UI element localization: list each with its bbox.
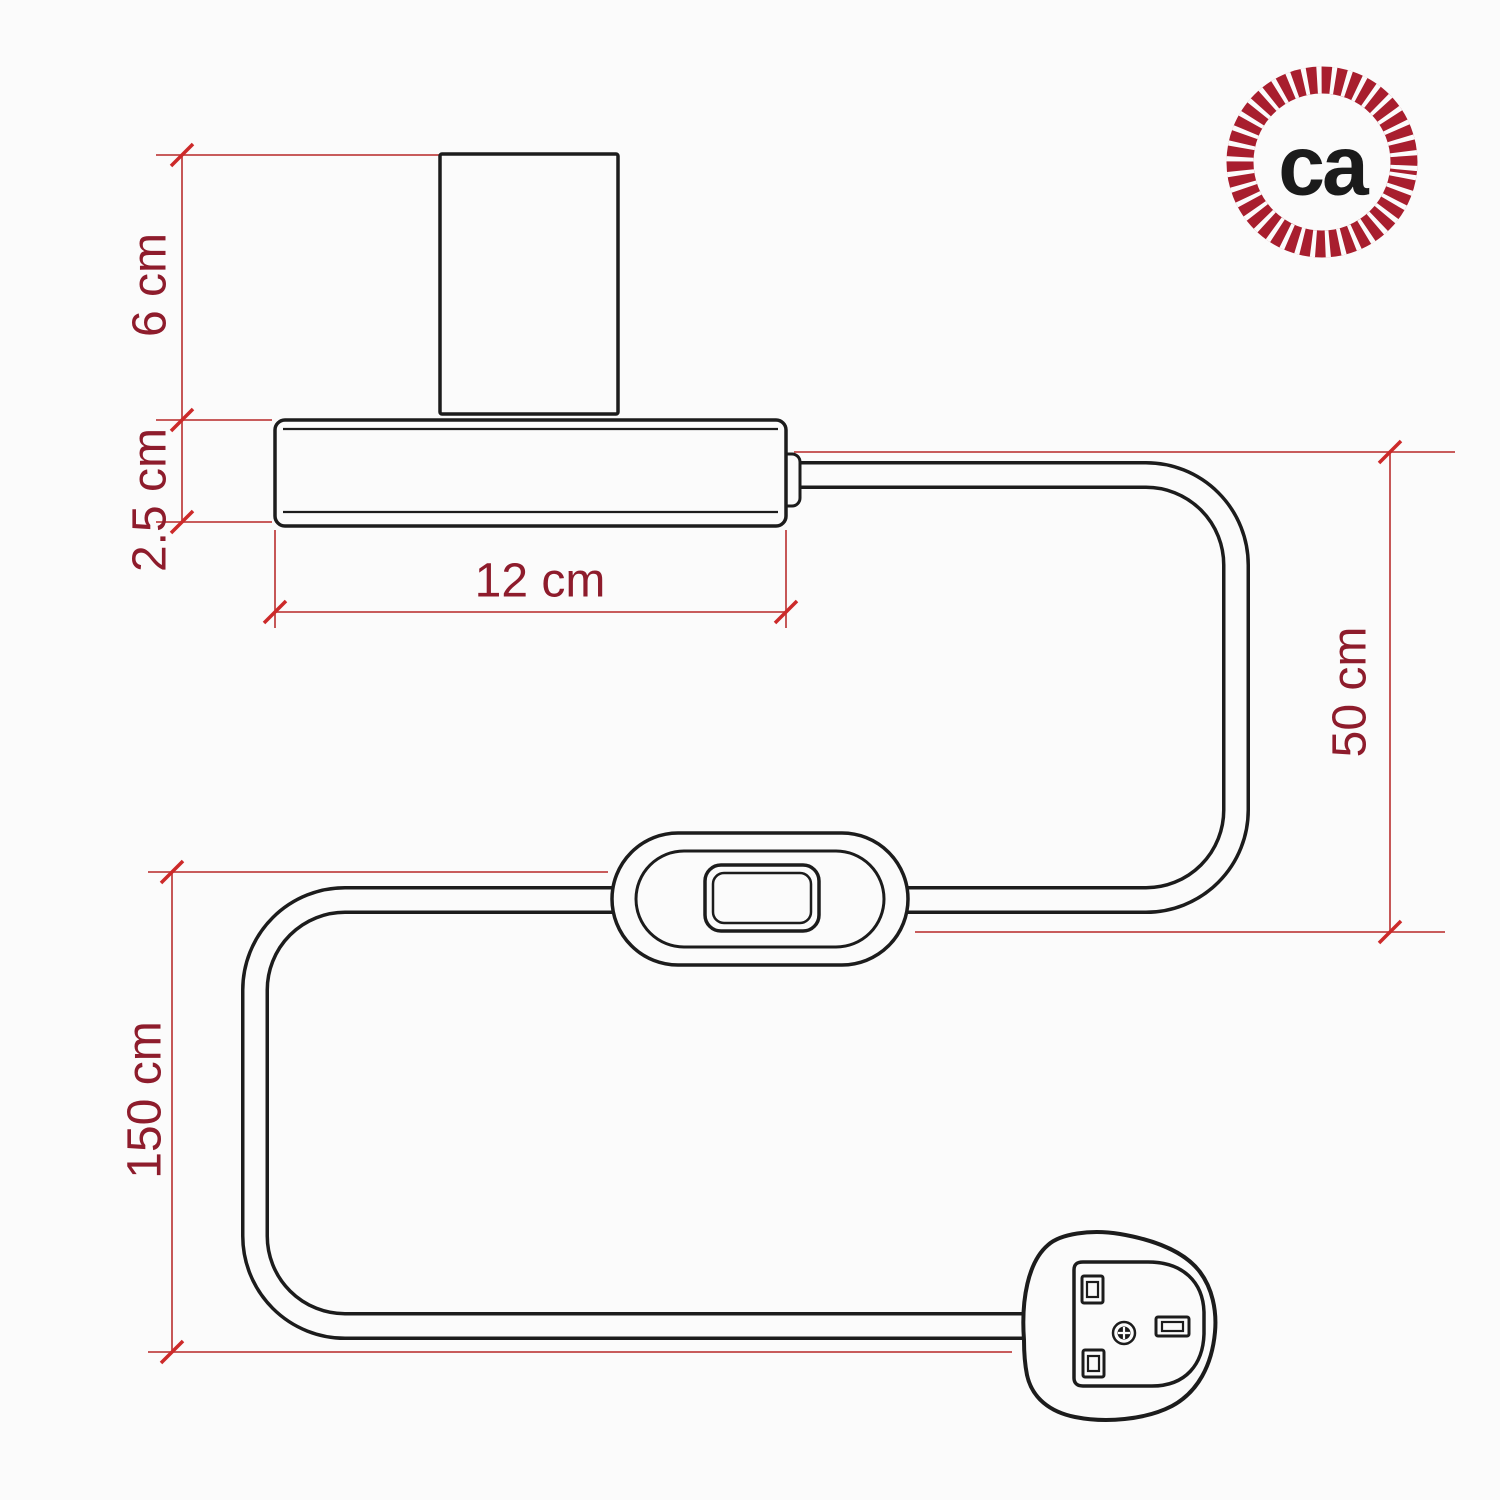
label-base-width: 12 cm xyxy=(475,554,606,609)
plug-face-panel xyxy=(1074,1262,1204,1386)
logo-monogram: ca xyxy=(1278,118,1365,215)
lamp-holder-outline xyxy=(440,154,618,414)
label-cable-lamp-to-switch: 50 cm xyxy=(1323,627,1378,758)
diagram-line-art xyxy=(0,0,1500,1500)
cable-switch-to-plug xyxy=(255,900,1040,1326)
dimension-ticks xyxy=(161,144,1401,1363)
uk-plug xyxy=(1023,1232,1215,1420)
inline-switch xyxy=(612,833,908,965)
switch-button xyxy=(705,865,819,931)
dimension-diagram: 6 cm 2.5 cm 12 cm 50 cm 150 cm ca xyxy=(0,0,1500,1500)
label-lampholder-height: 6 cm xyxy=(123,233,178,337)
label-cable-switch-to-plug: 150 cm xyxy=(118,1021,173,1178)
lamp xyxy=(275,154,800,526)
cable-core xyxy=(255,900,1040,1326)
lamp-base-outline xyxy=(275,420,786,526)
label-base-height: 2.5 cm xyxy=(123,428,178,572)
